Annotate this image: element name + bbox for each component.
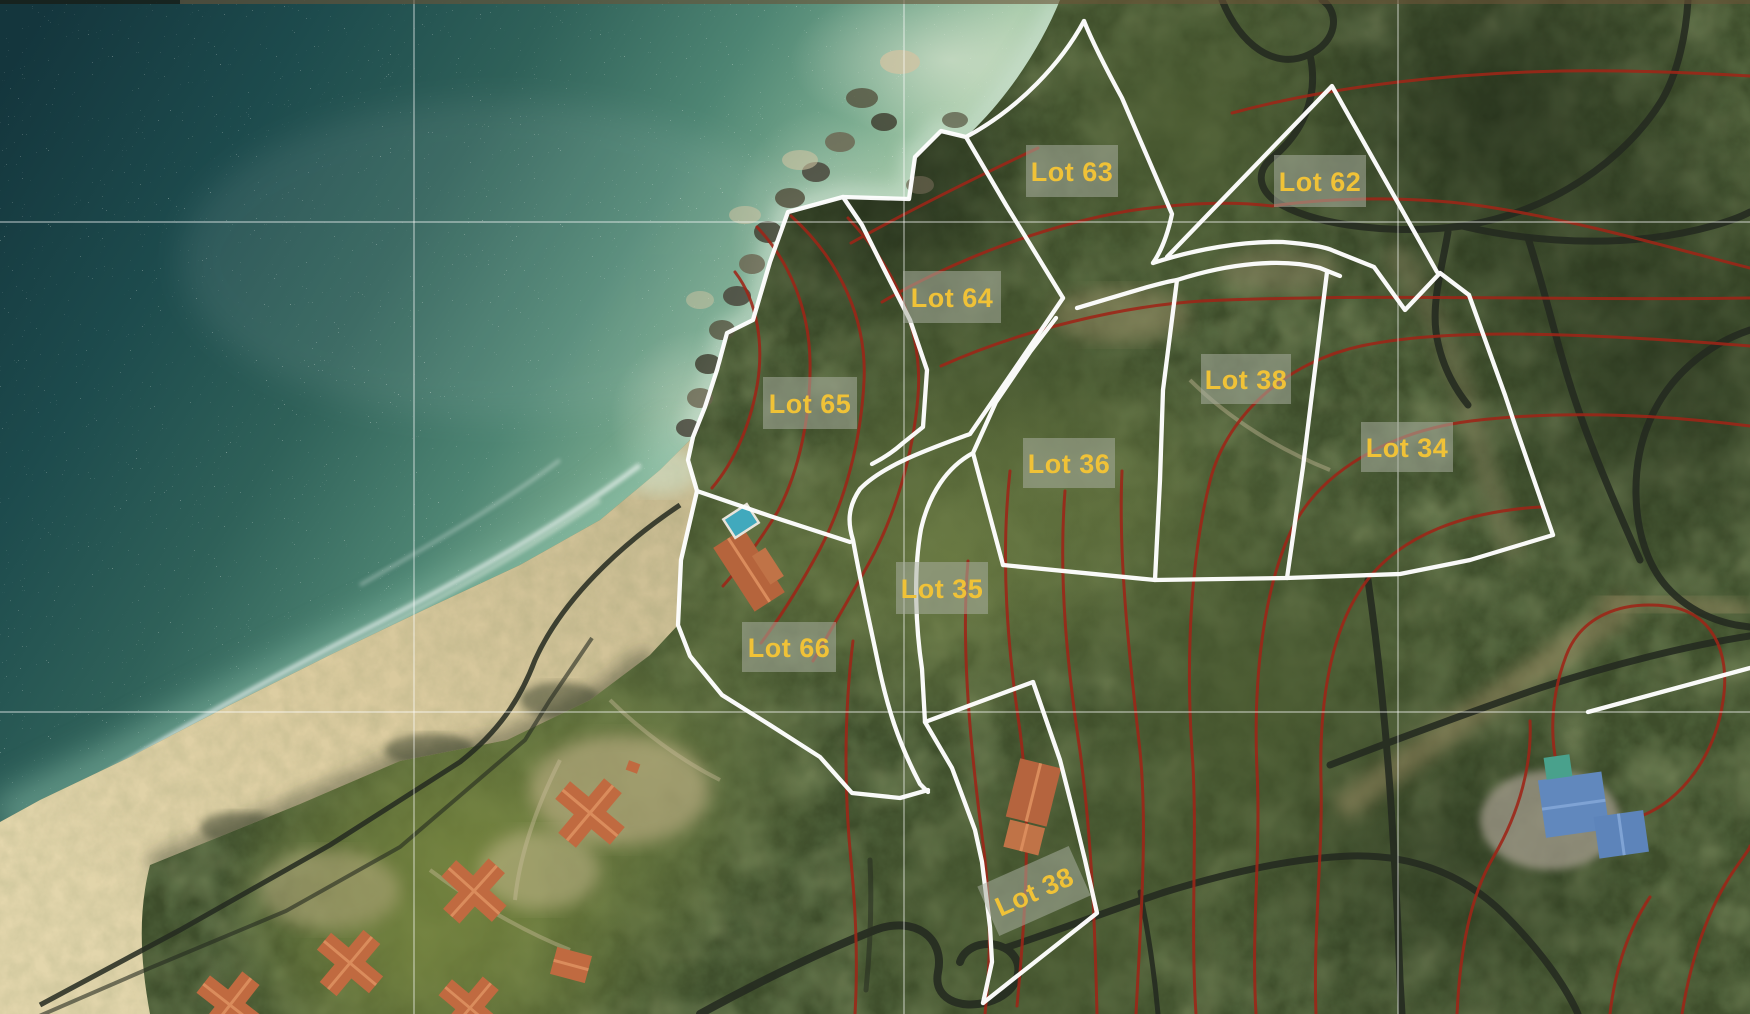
lot-label-36[interactable]: Lot 36 [1023, 438, 1115, 488]
lot-label-36-text: Lot 36 [1028, 449, 1111, 479]
lot-label-38-upper[interactable]: Lot 38 [1201, 354, 1291, 404]
lot-label-64[interactable]: Lot 64 [903, 271, 1001, 323]
lot-label-38-upper-text: Lot 38 [1205, 365, 1288, 395]
lot-label-63[interactable]: Lot 63 [1026, 145, 1118, 197]
lot-label-34-text: Lot 34 [1366, 433, 1449, 463]
lot-label-65[interactable]: Lot 65 [763, 377, 857, 429]
aerial-lot-map: Lot 63 Lot 62 Lot 64 Lot 65 Lot 38 Lot 3… [0, 0, 1750, 1014]
lot-label-62[interactable]: Lot 62 [1274, 155, 1366, 207]
lot-label-35[interactable]: Lot 35 [896, 562, 988, 614]
lot-label-34[interactable]: Lot 34 [1361, 422, 1453, 472]
lot-label-64-text: Lot 64 [911, 283, 994, 313]
lot-label-35-text: Lot 35 [901, 574, 984, 604]
lot-label-66-text: Lot 66 [748, 633, 831, 663]
lot-label-62-text: Lot 62 [1279, 167, 1362, 197]
lot-label-65-text: Lot 65 [769, 389, 852, 419]
photo-edge [0, 0, 1750, 4]
green-roof-shed [1544, 754, 1573, 779]
map-canvas: Lot 63 Lot 62 Lot 64 Lot 65 Lot 38 Lot 3… [0, 0, 1750, 1014]
lot-label-66[interactable]: Lot 66 [742, 622, 836, 672]
lot-label-63-text: Lot 63 [1031, 157, 1114, 187]
